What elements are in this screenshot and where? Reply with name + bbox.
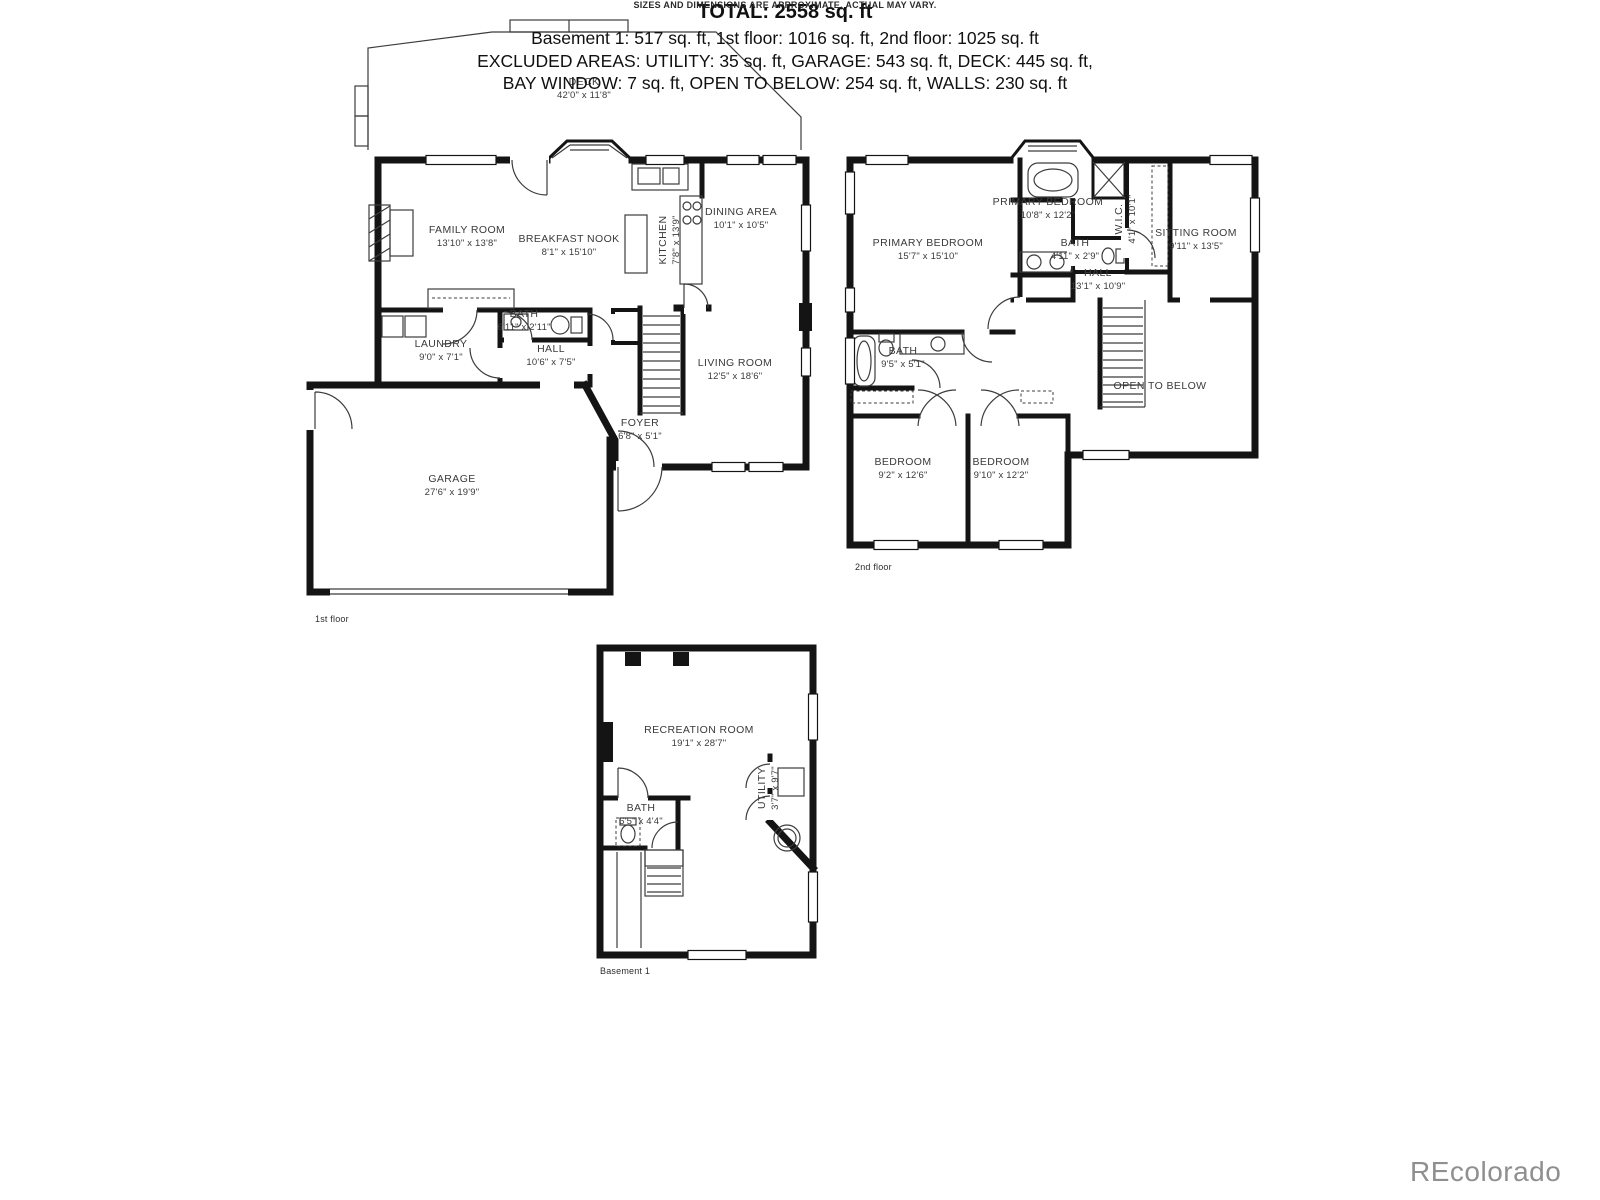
- room-label-bath-hall: BATH 9'5" x 5'1": [881, 345, 925, 371]
- room-label-bedroom-2: BEDROOM 9'10" x 12'2": [972, 456, 1029, 482]
- room-label-sitting-room: SITTING ROOM 9'11" x 13'5": [1155, 227, 1237, 253]
- floor-plan-page: { "floors": [ { "label": "1st floor", "r…: [0, 0, 1600, 1200]
- area-summary: TOTAL: 2558 sq. ft Basement 1: 517 sq. f…: [0, 0, 1570, 95]
- watermark-logo: REcolorado: [1410, 1156, 1561, 1188]
- room-label-bath-basement: BATH 6'5" x 4'4": [619, 802, 663, 828]
- room-label-foyer: FOYER 6'8" x 5'1": [618, 417, 662, 443]
- floor-areas-line: Basement 1: 517 sq. ft, 1st floor: 1016 …: [0, 27, 1570, 50]
- first-floor-plan: [304, 20, 812, 597]
- room-label-living-room: LIVING ROOM 12'5" x 18'6": [698, 357, 772, 383]
- room-label-open-to-below: OPEN TO BELOW: [1114, 380, 1207, 394]
- room-label-breakfast-nook: BREAKFAST NOOK 8'1" x 15'10": [518, 233, 619, 259]
- room-label-primary-bedroom-1: PRIMARY BEDROOM 10'8" x 12'2": [993, 196, 1104, 222]
- room-label-utility: UTILITY 3'7" x 9'7": [756, 766, 782, 810]
- floorplan-drawing: [0, 0, 1600, 1200]
- room-label-hall-2nd: HALL 13'1" x 10'9": [1071, 267, 1126, 293]
- room-label-bath-1st: BATH 6'11" x 2'11": [497, 308, 550, 334]
- excluded-areas-line-2: BAY WINDOW: 7 sq. ft, OPEN TO BELOW: 254…: [0, 72, 1570, 95]
- room-label-primary-bedroom-2: PRIMARY BEDROOM 15'7" x 15'10": [873, 237, 984, 263]
- room-label-dining-area: DINING AREA 10'1" x 10'5": [705, 206, 777, 232]
- disclaimer-text: SIZES AND DIMENSIONS ARE APPROXIMATE, AC…: [0, 0, 1570, 10]
- room-label-kitchen: KITCHEN 7'8" x 13'9": [657, 215, 683, 264]
- room-label-wic: W.I.C. 4'1" x 10'1": [1113, 194, 1139, 243]
- room-label-bath-primary: BATH 4'11" x 2'9": [1051, 237, 1100, 263]
- floor-tag-2nd: 2nd floor: [855, 562, 892, 572]
- room-label-hall-1st: HALL 10'6" x 7'5": [526, 343, 575, 369]
- room-label-bedroom-1: BEDROOM 9'2" x 12'6": [874, 456, 931, 482]
- room-label-garage: GARAGE 27'6" x 19'9": [425, 473, 480, 499]
- floor-tag-1st: 1st floor: [315, 614, 349, 624]
- room-label-family-room: FAMILY ROOM 13'10" x 13'8": [429, 224, 505, 250]
- room-label-laundry: LAUNDRY 9'0" x 7'1": [415, 338, 468, 364]
- floor-tag-basement: Basement 1: [600, 966, 650, 976]
- excluded-areas-line-1: EXCLUDED AREAS: UTILITY: 35 sq. ft, GARA…: [0, 50, 1570, 73]
- room-label-recreation-room: RECREATION ROOM 19'1" x 28'7": [644, 724, 754, 750]
